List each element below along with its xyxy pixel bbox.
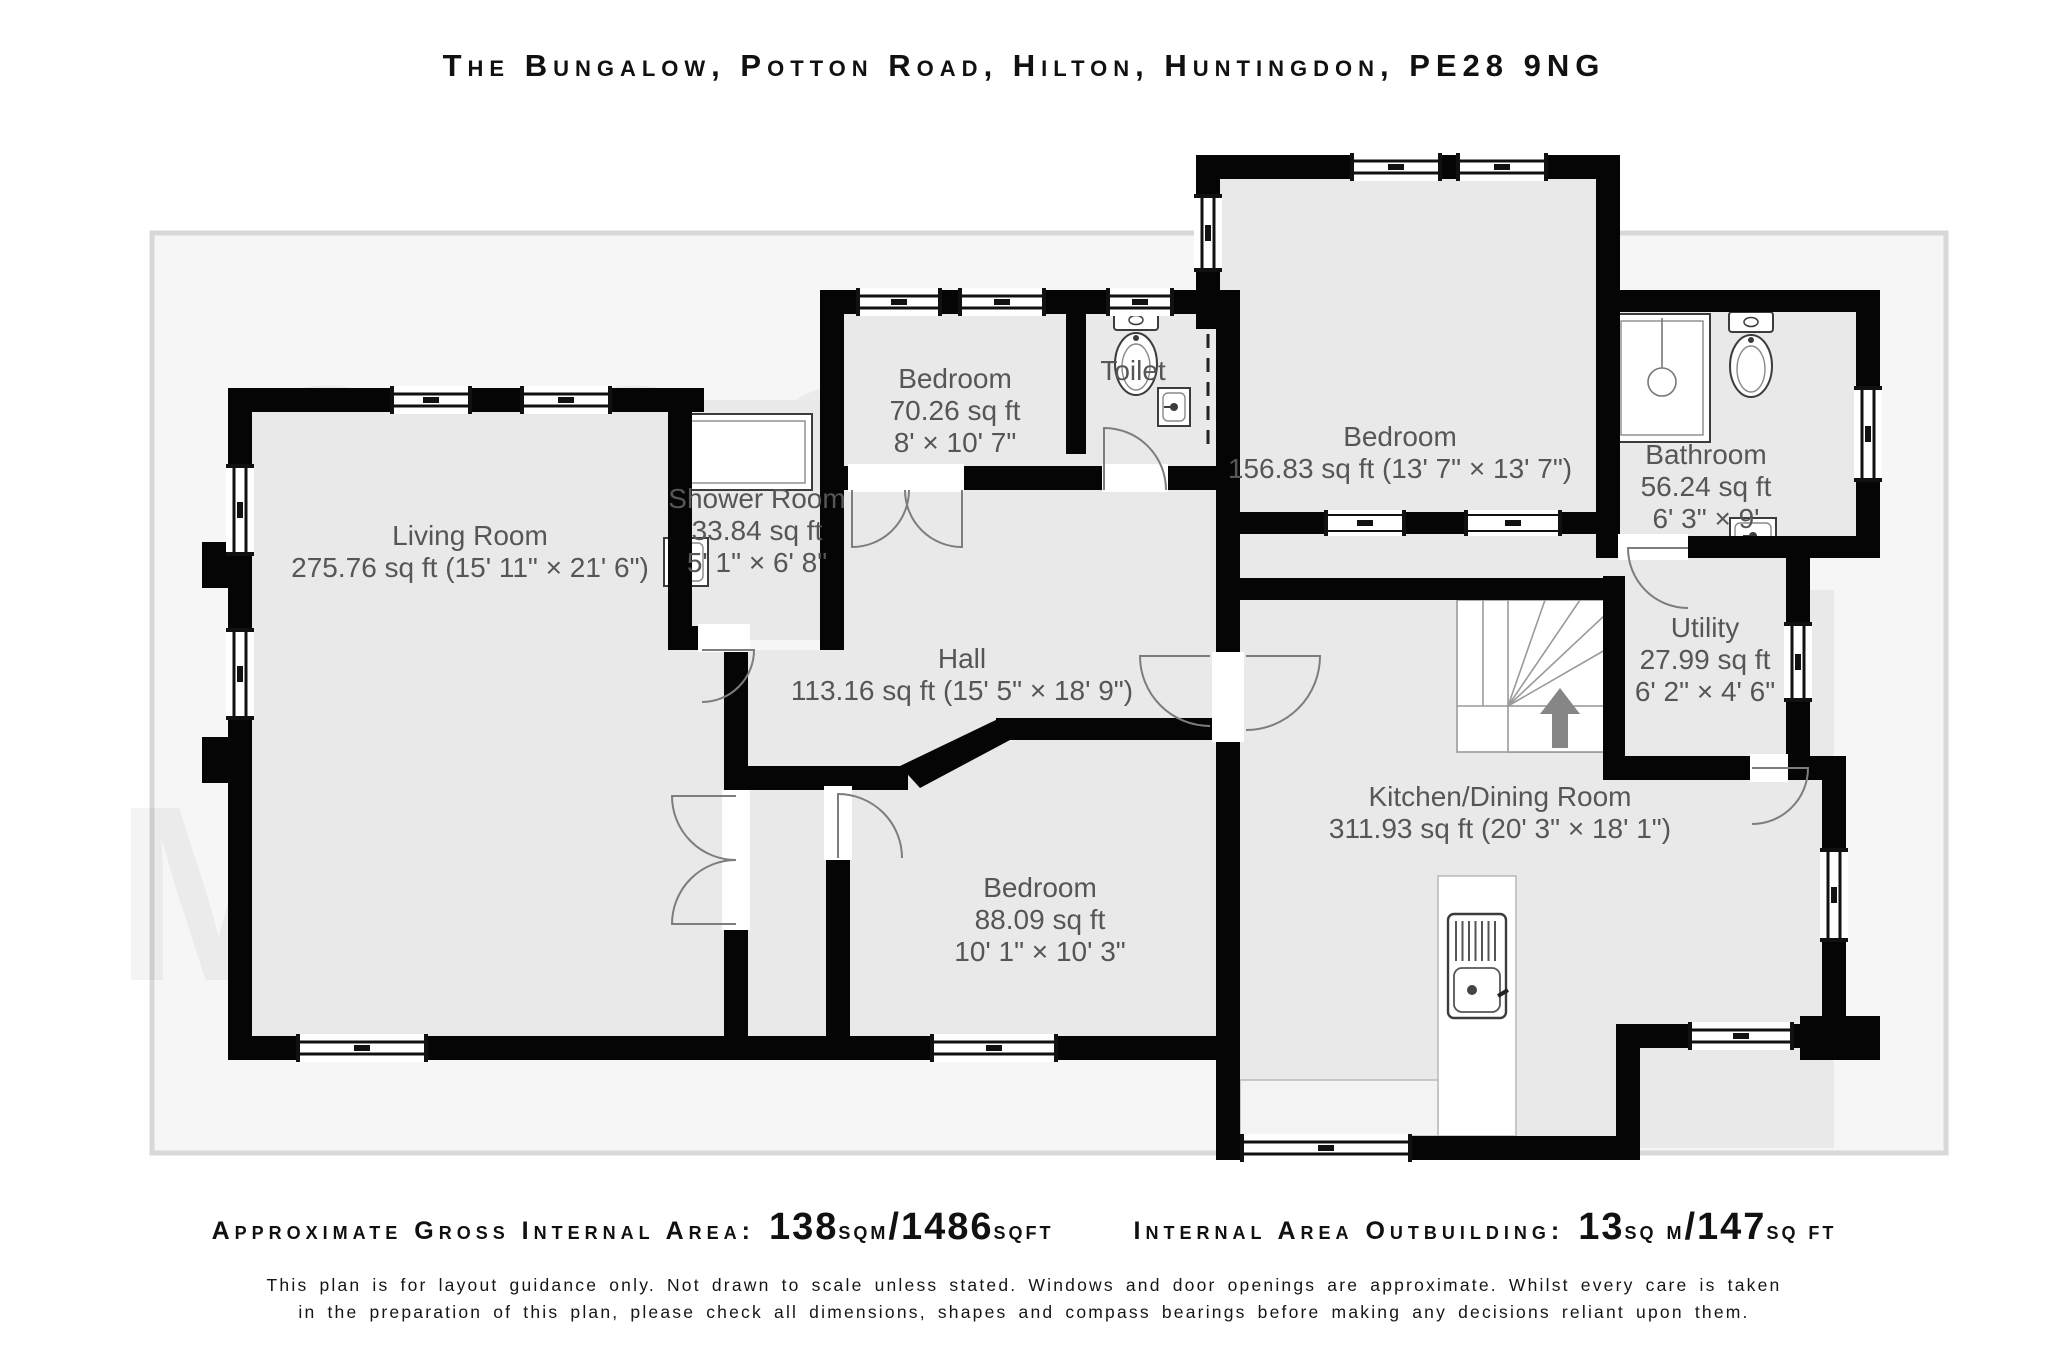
room-label-bathroom: Bathroom56.24 sq ft6' 3" × 9' — [1641, 439, 1772, 534]
outbuilding-value-metric: 13 — [1578, 1206, 1624, 1249]
area-summary: Approximate Gross Internal Area: 138 sqm… — [0, 1206, 2048, 1249]
internal-window — [1464, 510, 1562, 536]
sink-icon — [1158, 388, 1190, 426]
shower-tray-icon — [1614, 314, 1710, 442]
window — [520, 386, 612, 414]
gia-unit-metric: sqm — [838, 1217, 888, 1246]
room-label-toilet: Toilet — [1100, 355, 1166, 386]
wall-segment — [1240, 512, 1620, 534]
window — [1854, 386, 1882, 482]
wall-segment — [1596, 300, 1620, 558]
counter — [1240, 1080, 1438, 1136]
room-floor — [1228, 490, 1620, 590]
window — [1688, 1022, 1794, 1050]
window — [958, 288, 1046, 316]
wall-segment — [1603, 576, 1625, 780]
outbuilding-label: Internal Area Outbuilding: — [1134, 1217, 1565, 1246]
floor-plan-page: GIGGS &McGRATHLiving Room275.76 sq ft (1… — [0, 0, 2048, 1365]
outbuilding-area: Internal Area Outbuilding: 13 sq m /147 … — [1134, 1206, 1837, 1249]
outbuilding-unit-metric: sq m — [1625, 1217, 1685, 1246]
outbuilding-unit-imperial: sq ft — [1766, 1217, 1836, 1246]
window — [226, 628, 254, 720]
outbuilding-value-imperial: /147 — [1684, 1206, 1766, 1249]
window — [390, 386, 472, 414]
wall-segment — [668, 388, 692, 650]
page-title: The Bungalow, Potton Road, Hilton, Hunti… — [0, 48, 2048, 84]
disclaimer-line-2: in the preparation of this plan, please … — [0, 1299, 2048, 1326]
window — [226, 464, 254, 556]
wall-segment — [1596, 290, 1880, 312]
floor-plan: GIGGS &McGRATHLiving Room275.76 sq ft (1… — [0, 0, 2048, 1365]
kitchen-sink-icon — [1448, 914, 1508, 1018]
gross-internal-area: Approximate Gross Internal Area: 138 sqm… — [212, 1206, 1054, 1249]
wall-segment — [202, 542, 228, 588]
gia-value-metric: 138 — [769, 1206, 838, 1249]
room-label-bedroom-front: Bedroom70.26 sq ft8' × 10' 7" — [890, 363, 1021, 458]
stairs-icon — [1457, 600, 1605, 752]
window — [930, 1034, 1058, 1062]
room-floor — [240, 400, 736, 1048]
disclaimer: This plan is for layout guidance only. N… — [0, 1272, 2048, 1326]
internal-window — [1324, 510, 1406, 536]
window — [1456, 153, 1548, 181]
wall-segment — [1596, 155, 1620, 312]
window — [1784, 622, 1812, 702]
door-opening — [698, 624, 750, 652]
room-label-kitchen-dining: Kitchen/Dining Room311.93 sq ft (20' 3" … — [1329, 781, 1671, 844]
window — [1350, 153, 1442, 181]
door-opening — [848, 464, 964, 492]
wall-segment — [820, 290, 844, 650]
wall-segment — [202, 737, 228, 783]
door-opening — [1102, 464, 1168, 492]
wall-segment — [1066, 290, 1086, 454]
wall-segment — [1216, 578, 1618, 600]
window — [1106, 288, 1174, 316]
gia-label: Approximate Gross Internal Area: — [212, 1217, 755, 1246]
gia-unit-imperial: sqft — [994, 1217, 1054, 1246]
shower-tray-icon — [676, 414, 812, 490]
window — [1240, 1134, 1412, 1162]
window — [1820, 848, 1848, 942]
window — [856, 288, 942, 316]
room-label-shower-room: Shower Room33.84 sq ft5' 1" × 6' 8" — [668, 483, 845, 578]
wall-segment — [1216, 740, 1240, 1160]
gia-value-imperial: /1486 — [888, 1206, 993, 1249]
window — [296, 1034, 428, 1062]
toilet-icon — [1729, 312, 1773, 397]
wall-segment — [1216, 466, 1240, 652]
window — [1194, 194, 1222, 272]
door-opening — [1212, 652, 1244, 742]
disclaimer-line-1: This plan is for layout guidance only. N… — [0, 1272, 2048, 1299]
